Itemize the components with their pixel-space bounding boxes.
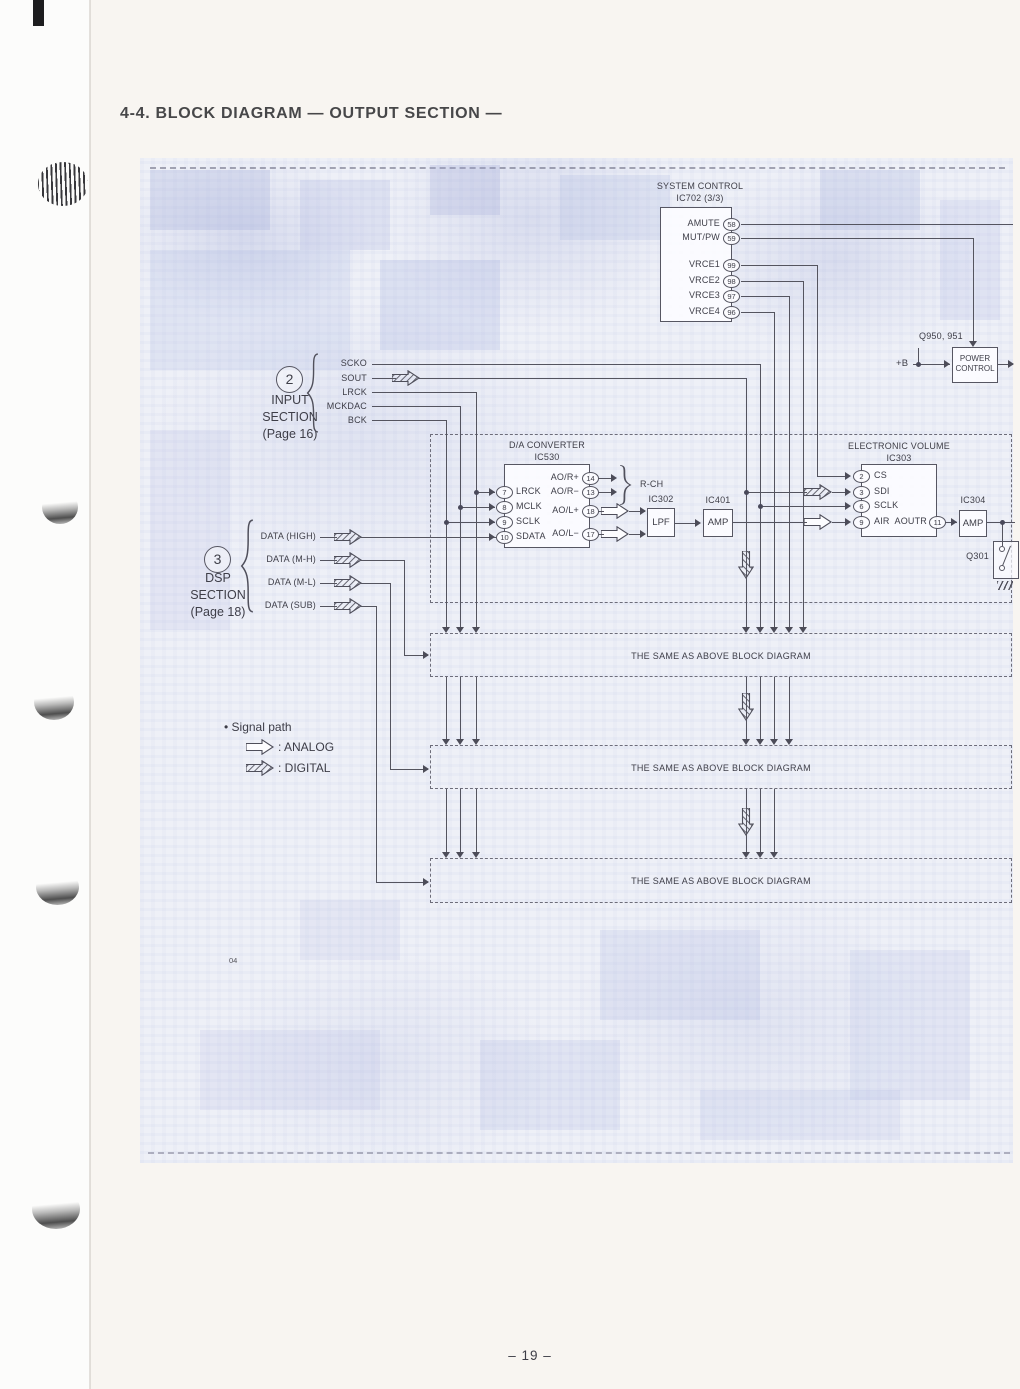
dac-pin-label-aol-minus: AO/L− <box>519 528 579 539</box>
digital-arrow-icon <box>334 598 362 614</box>
connector-line <box>320 560 337 561</box>
connector-line <box>746 677 747 739</box>
connector-line <box>376 606 377 882</box>
dac-pin-17: 17 <box>582 528 599 541</box>
connector-line <box>372 364 760 365</box>
pin-label-vrce4: VRCE4 <box>646 306 720 317</box>
connector-line <box>741 224 1013 225</box>
evol-pin-label-cs: CS <box>874 470 887 481</box>
legend-analog-label: : ANALOG <box>278 740 334 754</box>
dac-pin-7: 7 <box>496 486 513 499</box>
arrowhead-down <box>442 852 450 858</box>
connector-line <box>741 312 774 313</box>
digital-arrow-icon <box>246 760 274 776</box>
connector-line <box>476 392 477 627</box>
connector-line <box>320 606 337 607</box>
arrowhead-right <box>845 472 851 480</box>
arrowhead-down <box>756 627 764 633</box>
junction-dot <box>474 490 479 495</box>
signal-label-lrck: LRCK <box>297 387 367 398</box>
junction-dot <box>916 362 921 367</box>
signal-label-data-high: DATA (HIGH) <box>226 531 316 542</box>
connector-line <box>446 789 447 852</box>
legend-title: • Signal path <box>224 720 292 734</box>
arrowhead-right <box>845 502 851 510</box>
dac-pin-label-aor-plus: AO/R+ <box>519 472 579 483</box>
evol-title: ELECTRONIC VOLUME <box>836 441 962 452</box>
connector-line <box>760 677 761 739</box>
connector-line <box>460 677 461 739</box>
pin-number-vrce1: 99 <box>723 259 740 272</box>
connector-line <box>733 522 807 523</box>
arrowhead-right <box>1008 360 1014 368</box>
r-ch-label: R-CH <box>640 479 663 490</box>
arrowhead-down <box>742 739 750 745</box>
arrowhead-down <box>472 627 480 633</box>
arrowhead-down <box>742 627 750 633</box>
evol-pin-3: 3 <box>853 486 870 499</box>
arrowhead-down <box>442 627 450 633</box>
pin-number-vrce4: 96 <box>723 306 740 319</box>
dac-pin-18: 18 <box>582 505 599 518</box>
system-control-title: SYSTEM CONTROL <box>630 181 770 192</box>
dac-pin-label-aol-plus: AO/L+ <box>519 505 579 516</box>
evol-pin-2: 2 <box>853 470 870 483</box>
digital-arrow-icon <box>334 575 362 591</box>
block-diagram: THE SAME AS ABOVE BLOCK DIAGRAM THE SAME… <box>0 0 1020 1389</box>
dac-subtitle: IC530 <box>489 452 605 463</box>
arrowhead-down <box>472 852 480 858</box>
arrowhead-down <box>770 627 778 633</box>
input-section-page-ref: (Page 16) <box>248 427 332 441</box>
footnote: 04 <box>229 956 237 965</box>
arrowhead-down <box>799 627 807 633</box>
connector-line <box>476 677 477 739</box>
connector-line <box>789 296 790 627</box>
arrowhead-down <box>756 852 764 858</box>
junction-dot <box>444 520 449 525</box>
amp-out-block: AMP <box>959 510 987 537</box>
arrowhead-right <box>423 878 429 886</box>
arrowhead-down <box>456 739 464 745</box>
dac-pin-label-aor-minus: AO/R− <box>519 486 579 497</box>
dac-pin-8: 8 <box>496 501 513 514</box>
arrowhead-right <box>489 533 495 541</box>
dac-pin-9: 9 <box>496 516 513 529</box>
analog-arrow-icon <box>804 514 832 530</box>
arrowhead-down <box>442 739 450 745</box>
pin-label-mutpw: MUT/PW <box>646 232 720 243</box>
arrowhead-right <box>951 518 957 526</box>
arrowhead-down <box>785 739 793 745</box>
same-as-above-box: THE SAME AS ABOVE BLOCK DIAGRAM <box>430 633 1012 677</box>
connector-line <box>460 789 461 852</box>
same-as-above-label: THE SAME AS ABOVE BLOCK DIAGRAM <box>431 763 1011 774</box>
pin-number-mutpw: 59 <box>723 232 740 245</box>
same-as-above-box: THE SAME AS ABOVE BLOCK DIAGRAM <box>430 745 1012 789</box>
connector-line <box>817 265 818 476</box>
connector-line <box>361 583 390 584</box>
connector-line <box>404 560 405 655</box>
pin-label-vrce1: VRCE1 <box>646 259 720 270</box>
connector-line <box>760 364 761 627</box>
digital-arrow-icon <box>334 529 362 545</box>
connector-line <box>598 511 604 512</box>
connector-line <box>741 238 973 239</box>
same-as-above-box: THE SAME AS ABOVE BLOCK DIAGRAM <box>430 858 1012 903</box>
arrowhead-down <box>770 739 778 745</box>
arrowhead-right <box>423 765 429 773</box>
arrowhead-right <box>611 474 617 482</box>
amp-r-label: AMP <box>704 510 732 536</box>
evol-subtitle: IC303 <box>836 453 962 464</box>
amp-r-ref: IC401 <box>688 495 748 506</box>
pin-number-amute: 58 <box>723 218 740 231</box>
connector-line <box>372 420 446 421</box>
dac-title: D/A CONVERTER <box>489 440 605 451</box>
connector-line <box>774 312 775 627</box>
arrowhead-down <box>756 739 764 745</box>
evol-pin-label-sdi: SDI <box>874 486 890 497</box>
dac-pin-label-sclk: SCLK <box>516 516 540 527</box>
power-control-line1: POWER <box>953 354 997 364</box>
arrowhead-right <box>489 488 495 496</box>
connector-line <box>372 392 476 393</box>
connector-line <box>789 677 790 739</box>
amp-out-ref: IC304 <box>943 495 1003 506</box>
connector-line <box>361 606 376 607</box>
signal-label-bck: BCK <box>297 415 367 426</box>
arrowhead-down <box>456 627 464 633</box>
pin-label-amute: AMUTE <box>646 218 720 229</box>
connector-line <box>320 537 337 538</box>
signal-label-mckdac: MCKDAC <box>297 401 367 412</box>
arrowhead-down <box>770 852 778 858</box>
arrowhead-right <box>489 518 495 526</box>
connector-line <box>746 789 747 852</box>
evol-pin-label-sclk: SCLK <box>874 500 898 511</box>
arrowhead-down <box>456 852 464 858</box>
analog-arrow-icon <box>601 503 629 519</box>
supply-label: +B <box>896 358 908 369</box>
connector-line <box>741 296 789 297</box>
signal-label-data-ml: DATA (M-L) <box>226 577 316 588</box>
q301-ref: Q301 <box>954 551 989 562</box>
connector-line <box>372 406 460 407</box>
arrowhead-right <box>640 507 646 515</box>
connector-line <box>390 583 391 769</box>
digital-arrow-icon <box>334 552 362 568</box>
signal-label-data-mh: DATA (M-H) <box>226 554 316 565</box>
arrowhead-down <box>785 627 793 633</box>
ground-icon <box>997 581 1013 590</box>
connector-line <box>817 476 846 477</box>
arrowhead-right <box>845 518 851 526</box>
connector-line <box>361 560 404 561</box>
connector-line <box>320 583 337 584</box>
legend-digital-label: : DIGITAL <box>278 761 330 775</box>
digital-arrow-icon <box>804 484 832 500</box>
junction-dot <box>1000 520 1005 525</box>
arrowhead-right <box>423 651 429 659</box>
power-control-line2: CONTROL <box>953 364 997 374</box>
connector-line <box>446 677 447 739</box>
arrowhead-right <box>611 488 617 496</box>
arrowhead-right <box>944 360 950 368</box>
dac-pin-13: 13 <box>582 486 599 499</box>
pin-label-vrce2: VRCE2 <box>646 275 720 286</box>
analog-arrow-icon <box>246 739 274 755</box>
connector-line <box>376 882 428 883</box>
arrowhead-down <box>969 341 977 347</box>
lpf-label: LPF <box>648 509 674 536</box>
pin-number-vrce3: 97 <box>723 290 740 303</box>
junction-dot <box>758 504 763 509</box>
q301-switch <box>993 541 1019 579</box>
analog-arrow-icon <box>601 526 629 542</box>
signal-label-sout: SOUT <box>297 373 367 384</box>
connector-line <box>774 677 775 739</box>
lpf-block: LPF <box>647 508 675 537</box>
evol-pin-11: 11 <box>929 516 946 529</box>
arrowhead-down <box>742 852 750 858</box>
lpf-ref: IC302 <box>631 494 691 505</box>
arrowhead-right <box>489 503 495 511</box>
dac-pin-10: 10 <box>496 531 513 544</box>
arrowhead-right <box>640 530 646 538</box>
power-control-block: POWER CONTROL <box>952 347 998 383</box>
connector-line <box>760 789 761 852</box>
connector-line <box>460 406 461 627</box>
connector-line <box>741 265 817 266</box>
connector-line <box>1002 522 1003 546</box>
same-as-above-label: THE SAME AS ABOVE BLOCK DIAGRAM <box>431 651 1011 662</box>
junction-dot <box>744 490 749 495</box>
same-as-above-label: THE SAME AS ABOVE BLOCK DIAGRAM <box>431 876 1011 887</box>
page-number: – 19 – <box>440 1348 620 1363</box>
pin-label-vrce3: VRCE3 <box>646 290 720 301</box>
signal-label-scko: SCKO <box>297 358 367 369</box>
junction-dot <box>458 505 463 510</box>
digital-arrow-icon <box>392 370 420 386</box>
signal-label-data-sub: DATA (SUB) <box>226 600 316 611</box>
connector-line <box>973 238 974 345</box>
system-control-subtitle: IC702 (3/3) <box>630 193 770 204</box>
arrowhead-down <box>472 739 480 745</box>
connector-line <box>419 378 746 379</box>
amp-out-label: AMP <box>960 511 986 536</box>
scanned-page: 4-4. BLOCK DIAGRAM — OUTPUT SECTION — TH… <box>0 0 1020 1389</box>
connector-line <box>741 281 803 282</box>
connector-line <box>598 534 604 535</box>
evol-pin-9: 9 <box>853 516 870 529</box>
amp-r-block: AMP <box>703 509 733 537</box>
pin-number-vrce2: 98 <box>723 275 740 288</box>
connector-line <box>746 492 807 493</box>
connector-line <box>476 789 477 852</box>
power-control-ref: Q950, 951 <box>919 331 963 342</box>
connector-line <box>803 281 804 627</box>
connector-line <box>746 378 747 627</box>
dac-pin-14: 14 <box>582 472 599 485</box>
evol-pin-label-aoutr: AOUTR <box>882 516 927 527</box>
switch-contact-icon <box>999 565 1005 571</box>
arrowhead-right <box>695 519 701 527</box>
connector-line <box>372 378 396 379</box>
arrowhead-right <box>845 488 851 496</box>
switch-contact-icon <box>999 546 1005 552</box>
evol-pin-6: 6 <box>853 500 870 513</box>
connector-line <box>774 789 775 852</box>
